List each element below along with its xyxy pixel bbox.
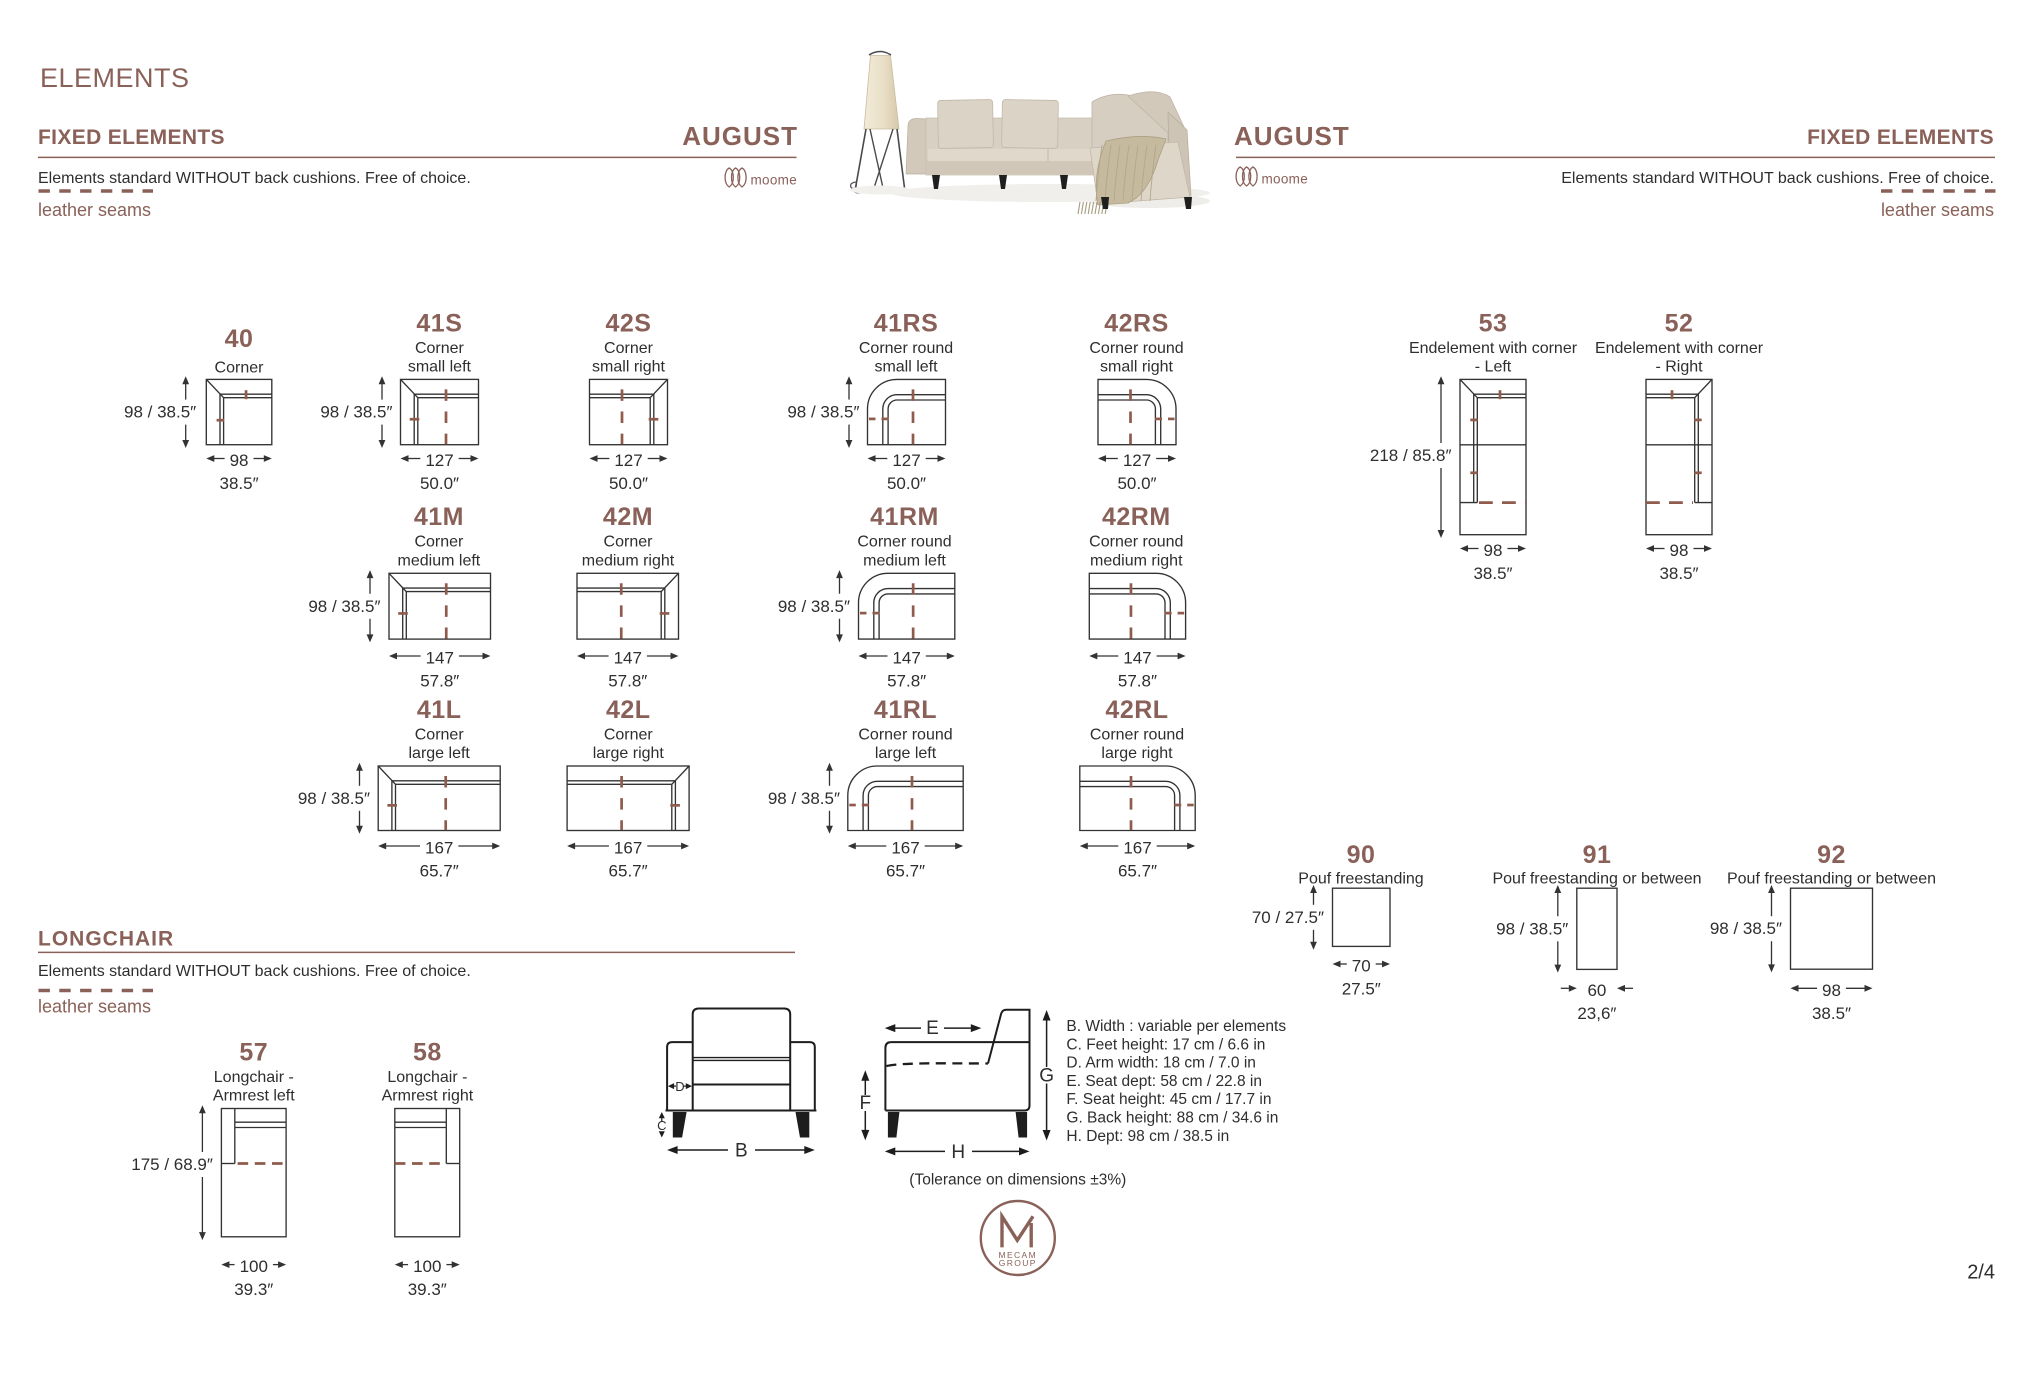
svg-text:42L: 42L: [606, 696, 651, 724]
svg-text:38.5″: 38.5″: [1812, 1004, 1851, 1023]
svg-text:98 / 38.5″: 98 / 38.5″: [768, 789, 840, 808]
svg-text:90: 90: [1347, 841, 1376, 869]
svg-text:167: 167: [614, 839, 642, 858]
svg-text:41L: 41L: [417, 696, 462, 724]
svg-text:F. Seat height: 45 cm / 17.7 i: F. Seat height: 45 cm / 17.7 in: [1066, 1091, 1271, 1108]
svg-text:218 / 85.8″: 218 / 85.8″: [1370, 446, 1452, 465]
svg-text:LONGCHAIR: LONGCHAIR: [38, 927, 174, 950]
svg-text:Pouf freestanding or between: Pouf freestanding or between: [1492, 871, 1701, 888]
svg-text:100: 100: [240, 1257, 268, 1276]
svg-text:Corner round: Corner round: [858, 726, 952, 743]
svg-text:53: 53: [1479, 310, 1508, 338]
svg-text:60: 60: [1587, 981, 1606, 1000]
svg-text:D: D: [675, 1079, 684, 1094]
svg-text:AUGUST: AUGUST: [1234, 121, 1350, 151]
svg-text:Elements standard WITHOUT back: Elements standard WITHOUT back cushions.…: [38, 963, 471, 980]
svg-text:Corner: Corner: [604, 340, 654, 357]
svg-text:Longchair -: Longchair -: [214, 1069, 294, 1086]
svg-text:50.0″: 50.0″: [1117, 474, 1156, 493]
svg-text:98 / 38.5″: 98 / 38.5″: [320, 403, 392, 422]
svg-text:41RM: 41RM: [870, 503, 939, 531]
svg-text:100: 100: [413, 1257, 441, 1276]
svg-text:50.0″: 50.0″: [609, 474, 648, 493]
svg-text:38.5″: 38.5″: [1659, 564, 1698, 583]
svg-text:Corner: Corner: [414, 534, 464, 551]
svg-text:167: 167: [1123, 839, 1151, 858]
svg-text:42M: 42M: [603, 503, 653, 531]
svg-text:Corner: Corner: [415, 340, 465, 357]
svg-text:98 / 38.5″: 98 / 38.5″: [787, 403, 859, 422]
svg-text:Corner: Corner: [604, 726, 654, 743]
svg-text:G. Back height: 88 cm / 34.6 i: G. Back height: 88 cm / 34.6 in: [1066, 1110, 1278, 1127]
svg-text:98: 98: [1484, 541, 1503, 560]
svg-text:40: 40: [225, 325, 254, 353]
svg-text:98: 98: [1670, 541, 1689, 560]
svg-text:Corner: Corner: [215, 360, 265, 377]
svg-text:medium right: medium right: [582, 552, 675, 569]
svg-text:Endelement with corner: Endelement with corner: [1595, 340, 1764, 357]
svg-text:large left: large left: [875, 745, 937, 762]
svg-text:92: 92: [1817, 841, 1846, 869]
svg-text:B. Width : variable per elemen: B. Width : variable per elements: [1066, 1018, 1286, 1035]
svg-text:large right: large right: [1101, 745, 1173, 762]
svg-text:147: 147: [426, 649, 454, 668]
svg-text:57.8″: 57.8″: [887, 672, 926, 691]
svg-text:E. Seat dept: 58 cm / 22.8 in: E. Seat dept: 58 cm / 22.8 in: [1066, 1073, 1262, 1090]
svg-text:large right: large right: [593, 745, 665, 762]
svg-text:- Left: - Left: [1475, 359, 1512, 376]
svg-text:leather seams: leather seams: [38, 200, 151, 220]
svg-text:41M: 41M: [414, 503, 464, 531]
svg-text:98 / 38.5″: 98 / 38.5″: [124, 403, 196, 422]
svg-text:42RS: 42RS: [1104, 310, 1169, 338]
svg-text:127: 127: [1123, 451, 1151, 470]
svg-text:41RL: 41RL: [874, 696, 937, 724]
svg-text:small right: small right: [1100, 359, 1173, 376]
svg-text:leather seams: leather seams: [38, 997, 151, 1017]
svg-text:C. Feet height: 17 cm / 6.6 in: C. Feet height: 17 cm / 6.6 in: [1066, 1036, 1265, 1053]
svg-text:D. Arm width: 18 cm / 7.0 in: D. Arm width: 18 cm / 7.0 in: [1066, 1055, 1256, 1072]
svg-text:39.3″: 39.3″: [408, 1280, 447, 1299]
svg-text:39.3″: 39.3″: [234, 1280, 273, 1299]
svg-text:98 / 38.5″: 98 / 38.5″: [308, 597, 380, 616]
svg-text:42RL: 42RL: [1105, 696, 1168, 724]
svg-text:50.0″: 50.0″: [887, 474, 926, 493]
svg-text:Corner: Corner: [415, 726, 465, 743]
svg-text:38.5″: 38.5″: [1473, 564, 1512, 583]
svg-text:41S: 41S: [416, 310, 462, 338]
svg-text:H. Dept: 98 cm / 38.5 in: H. Dept: 98 cm / 38.5 in: [1066, 1128, 1229, 1145]
svg-text:FIXED ELEMENTS: FIXED ELEMENTS: [1807, 126, 1994, 149]
svg-text:2/4: 2/4: [1967, 1262, 1995, 1284]
svg-text:Corner round: Corner round: [857, 534, 951, 551]
svg-text:F: F: [859, 1093, 871, 1114]
svg-text:Armrest right: Armrest right: [382, 1088, 474, 1105]
svg-text:38.5″: 38.5″: [219, 474, 258, 493]
svg-text:Longchair -: Longchair -: [387, 1069, 467, 1086]
svg-text:91: 91: [1583, 841, 1612, 869]
svg-text:Corner round: Corner round: [1089, 340, 1183, 357]
svg-text:medium right: medium right: [1090, 552, 1183, 569]
svg-text:147: 147: [614, 649, 642, 668]
svg-text:98 / 38.5″: 98 / 38.5″: [1496, 919, 1568, 938]
svg-text:57: 57: [239, 1039, 268, 1067]
svg-text:Pouf freestanding or between: Pouf freestanding or between: [1727, 871, 1936, 888]
svg-text:moome: moome: [1262, 172, 1309, 187]
svg-text:Armrest left: Armrest left: [213, 1088, 295, 1105]
svg-text:large left: large left: [409, 745, 471, 762]
svg-text:42RM: 42RM: [1102, 503, 1171, 531]
svg-text:70: 70: [1352, 957, 1371, 976]
svg-text:C: C: [657, 1118, 666, 1133]
svg-text:50.0″: 50.0″: [420, 474, 459, 493]
svg-text:167: 167: [425, 839, 453, 858]
svg-text:Pouf freestanding: Pouf freestanding: [1298, 871, 1423, 888]
svg-text:65.7″: 65.7″: [886, 862, 925, 881]
svg-text:ELEMENTS: ELEMENTS: [40, 63, 190, 93]
svg-text:127: 127: [614, 451, 642, 470]
svg-text:23,6″: 23,6″: [1577, 1004, 1616, 1023]
svg-text:98: 98: [230, 451, 249, 470]
svg-text:65.7″: 65.7″: [420, 862, 459, 881]
svg-text:52: 52: [1665, 310, 1694, 338]
svg-text:57.8″: 57.8″: [608, 672, 647, 691]
svg-text:AUGUST: AUGUST: [682, 121, 798, 151]
svg-text:167: 167: [891, 839, 919, 858]
svg-text:98: 98: [1822, 981, 1841, 1000]
svg-text:57.8″: 57.8″: [1118, 672, 1157, 691]
svg-text:42S: 42S: [606, 310, 652, 338]
svg-text:98 / 38.5″: 98 / 38.5″: [1710, 919, 1782, 938]
svg-text:small left: small left: [874, 359, 938, 376]
svg-text:Corner round: Corner round: [1090, 726, 1184, 743]
svg-text:127: 127: [892, 451, 920, 470]
svg-text:Corner: Corner: [604, 534, 654, 551]
svg-text:Elements standard WITHOUT back: Elements standard WITHOUT back cushions.…: [1561, 170, 1994, 187]
svg-text:Corner round: Corner round: [1089, 534, 1183, 551]
svg-text:B: B: [735, 1141, 748, 1162]
svg-text:E: E: [926, 1018, 939, 1039]
svg-text:FIXED ELEMENTS: FIXED ELEMENTS: [38, 126, 225, 149]
svg-text:Endelement with corner: Endelement with corner: [1409, 340, 1578, 357]
svg-text:127: 127: [425, 451, 453, 470]
svg-text:G: G: [1039, 1066, 1054, 1087]
svg-text:- Right: - Right: [1655, 359, 1703, 376]
svg-text:65.7″: 65.7″: [609, 862, 648, 881]
svg-text:147: 147: [892, 649, 920, 668]
svg-text:65.7″: 65.7″: [1118, 862, 1157, 881]
svg-text:41RS: 41RS: [874, 310, 939, 338]
svg-text:175 / 68.9″: 175 / 68.9″: [131, 1155, 213, 1174]
svg-text:medium left: medium left: [863, 552, 946, 569]
svg-text:H: H: [951, 1142, 965, 1163]
svg-text:57.8″: 57.8″: [420, 672, 459, 691]
svg-text:medium left: medium left: [398, 552, 481, 569]
svg-text:27.5″: 27.5″: [1342, 980, 1381, 999]
svg-text:small right: small right: [592, 359, 665, 376]
svg-text:Corner round: Corner round: [859, 340, 953, 357]
svg-text:moome: moome: [751, 173, 798, 188]
svg-text:small left: small left: [408, 359, 472, 376]
svg-text:leather seams: leather seams: [1881, 200, 1994, 220]
svg-text:98 / 38.5″: 98 / 38.5″: [298, 789, 370, 808]
svg-text:(Tolerance on dimensions ±3%): (Tolerance on dimensions ±3%): [909, 1172, 1126, 1189]
svg-text:70 / 27.5″: 70 / 27.5″: [1252, 908, 1324, 927]
svg-text:58: 58: [413, 1039, 442, 1067]
svg-text:Elements standard WITHOUT back: Elements standard WITHOUT back cushions.…: [38, 170, 471, 187]
svg-text:98 / 38.5″: 98 / 38.5″: [778, 597, 850, 616]
svg-text:147: 147: [1123, 649, 1151, 668]
svg-text:GROUP: GROUP: [999, 1258, 1037, 1268]
